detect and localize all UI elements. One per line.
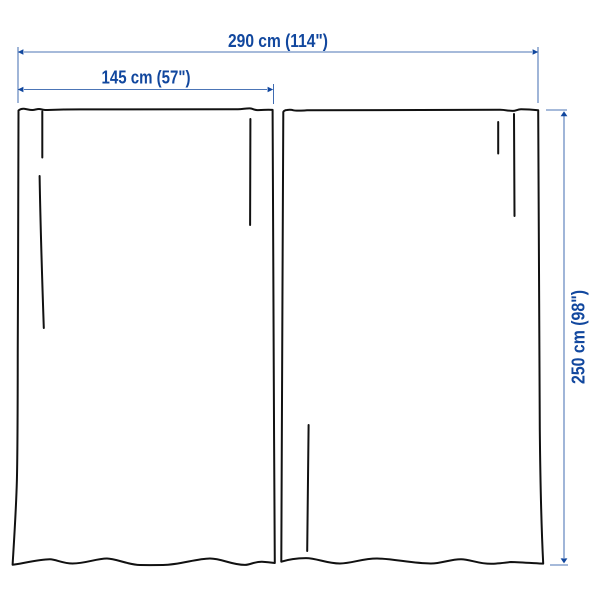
- svg-text:250 cm (98"): 250 cm (98"): [569, 290, 589, 384]
- svg-text:290 cm (114"): 290 cm (114"): [228, 31, 328, 51]
- svg-text:145 cm (57"): 145 cm (57"): [102, 68, 191, 88]
